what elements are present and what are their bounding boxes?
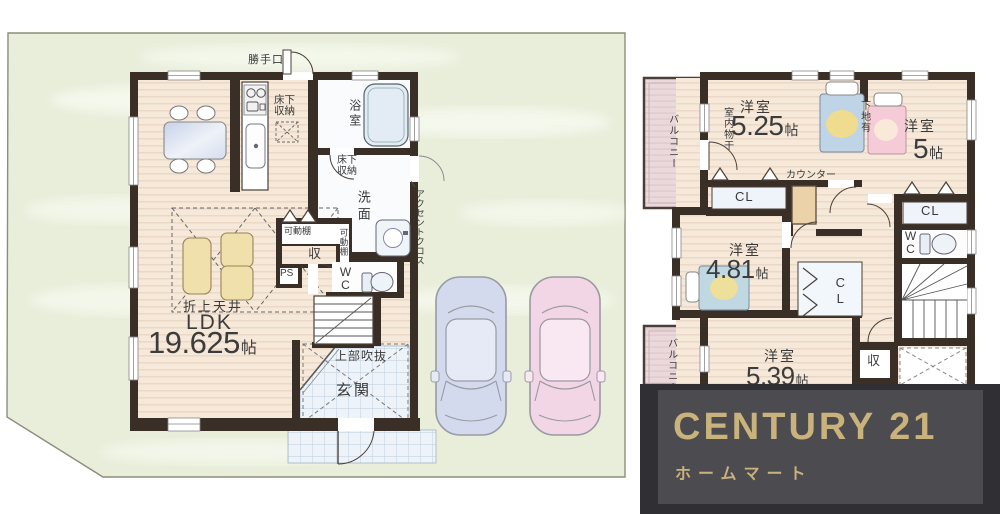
label-room2-size: 5帖: [913, 134, 943, 164]
counter-icon: [792, 186, 816, 224]
room3-size-value: 4.81: [706, 254, 755, 284]
room3-size-unit: 帖: [756, 266, 769, 281]
stairs-icon-2f: [902, 264, 967, 338]
label-wall-backing: 下地有: [858, 100, 869, 133]
label-movable-shelf-top: 可動棚: [284, 227, 311, 237]
ldk-size-value: 19.625: [148, 325, 240, 360]
stairs-icon-1f: [314, 296, 373, 344]
label-entrance: 玄関: [336, 383, 372, 399]
label-closet-1: CL: [735, 190, 754, 204]
label-underfloor-storage-kitchen: 床下収納: [272, 95, 297, 117]
label-storage-1f: 収: [308, 247, 321, 261]
label-open-above: 上部吹抜: [335, 350, 387, 363]
void-outline-2f: [900, 348, 966, 385]
toilet-icon-2f: [920, 234, 956, 254]
room1-size-value: 5.25: [731, 110, 784, 141]
label-underfloor-storage-wash: 床下収納: [336, 156, 358, 177]
label-room1-size: 5.25帖: [731, 111, 799, 141]
label-washroom: 洗面: [356, 190, 370, 224]
label-counter: カウンター: [786, 171, 836, 182]
label-indoor-drying: 室内物干: [721, 107, 732, 151]
room1-size-unit: 帖: [785, 122, 799, 138]
car-icon-blue: [431, 277, 511, 435]
logo-panel: CENTURY 21 ホームマート: [658, 390, 983, 504]
closet-3-area: [798, 262, 862, 316]
label-ldk-size: 19.625帖: [148, 327, 257, 360]
label-bathroom: 浴室: [348, 99, 361, 129]
kitchen-counter-icon: [242, 82, 268, 190]
room2-size-unit: 帖: [929, 145, 943, 161]
logo-brand-text: CENTURY 21: [673, 406, 937, 449]
label-pipe-space: PS: [280, 269, 293, 280]
bed-icon-pink: [868, 93, 906, 154]
logo-company-text: ホームマート: [675, 460, 813, 484]
label-balcony-top: バルコニー: [666, 114, 677, 169]
label-storage-2f: 収: [867, 354, 880, 368]
dining-table-icon: [164, 122, 226, 159]
label-closet-2: CL: [921, 204, 940, 218]
label-accent-cloth: アクセントクロス: [413, 189, 423, 265]
label-toilet-1f: WC: [338, 266, 353, 291]
label-closet-3: CL: [833, 275, 847, 307]
century21-logo: CENTURY 21 ホームマート: [640, 384, 1000, 514]
label-room3-size: 4.81帖: [706, 256, 769, 284]
bathtub-icon: [364, 84, 408, 146]
room2-size-value: 5: [913, 133, 928, 164]
label-movable-shelf-side: 可動棚: [339, 228, 348, 257]
porch-tiles: [288, 430, 436, 463]
label-toilet-2f: WC: [903, 230, 918, 255]
car-icon-pink: [525, 277, 605, 435]
label-back-door: 勝手口: [248, 55, 284, 67]
washbasin-icon: [376, 220, 410, 256]
floorplan-page: 勝手口 床下収納 浴室 床下収納 洗面 アクセントクロス 可動棚 可動棚 収 P…: [0, 0, 1000, 514]
ldk-size-unit: 帖: [241, 340, 257, 357]
label-room2-name: 洋室: [904, 119, 936, 134]
